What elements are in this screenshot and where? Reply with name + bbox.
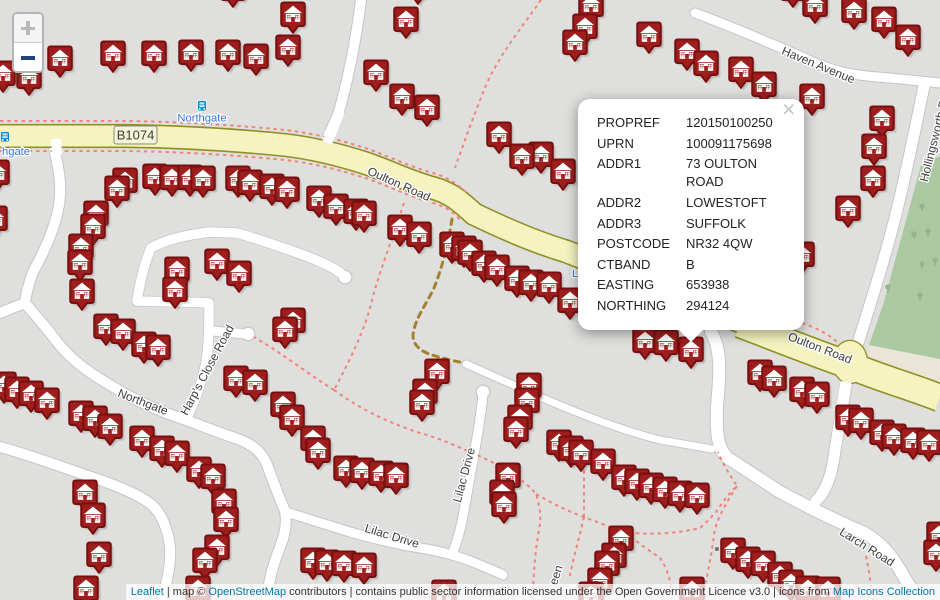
svg-text:hgate: hgate [2,146,30,158]
svg-text:B1074: B1074 [117,128,155,143]
svg-text:Northgate: Northgate [177,113,226,125]
